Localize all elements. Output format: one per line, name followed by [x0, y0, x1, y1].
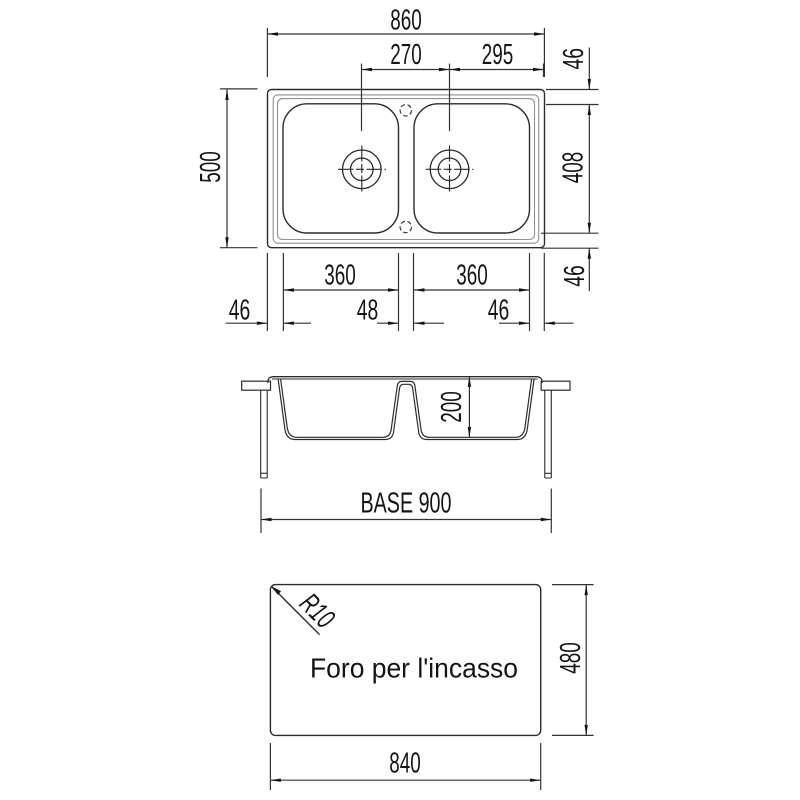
svg-text:408: 408: [557, 152, 589, 184]
svg-text:46: 46: [229, 295, 251, 327]
svg-text:840: 840: [389, 747, 421, 779]
svg-text:270: 270: [390, 39, 422, 71]
svg-text:46: 46: [488, 295, 510, 327]
svg-text:360: 360: [456, 259, 488, 291]
svg-text:295: 295: [482, 39, 514, 71]
svg-text:480: 480: [555, 642, 587, 674]
svg-text:360: 360: [324, 259, 356, 291]
svg-text:200: 200: [436, 391, 468, 423]
svg-text:500: 500: [195, 151, 227, 183]
svg-text:BASE 900: BASE 900: [361, 488, 452, 520]
svg-text:48: 48: [357, 295, 379, 327]
svg-text:Foro per l'incasso: Foro per l'incasso: [310, 653, 518, 684]
svg-text:46: 46: [558, 48, 590, 69]
svg-text:46: 46: [559, 265, 591, 287]
svg-text:860: 860: [390, 5, 422, 37]
